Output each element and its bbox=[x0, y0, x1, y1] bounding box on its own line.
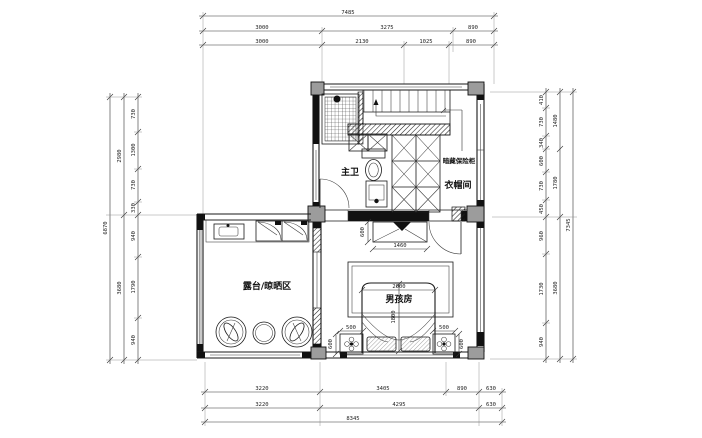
dim-top-r2-2: 890 bbox=[468, 25, 478, 31]
dim-bot-r1-1: 3405 bbox=[376, 386, 389, 392]
structural-column bbox=[467, 206, 484, 222]
structural-column bbox=[311, 82, 324, 95]
dim-bot-total: 8345 bbox=[346, 416, 359, 422]
dim-right-g2: 3680 bbox=[553, 281, 559, 294]
floor-drain bbox=[334, 96, 341, 103]
round-chair-left bbox=[216, 317, 246, 347]
dim-bed-length: 1800 bbox=[391, 310, 397, 323]
vanity-fixture bbox=[366, 181, 387, 207]
floor-plan-drawing: 7485 3000 3275 890 3000 2130 1025 890 32… bbox=[0, 0, 702, 438]
structural-column bbox=[468, 347, 484, 359]
label-hidden-safe: 暗藏保险柜 bbox=[443, 156, 476, 165]
dim-right-0: 410 bbox=[539, 95, 545, 105]
dim-bot-r2-0: 3220 bbox=[255, 402, 268, 408]
dim-right-2: 340 bbox=[539, 138, 545, 148]
interior-dimensions: 1460 600 2000 1800 500 500 600 600 bbox=[328, 219, 465, 357]
nightstand-left bbox=[340, 334, 363, 354]
upper-block: 暗藏保险柜 主卫 衣帽间 bbox=[308, 82, 484, 222]
round-table bbox=[253, 322, 275, 344]
dim-desk-width: 1460 bbox=[393, 243, 406, 249]
dim-left-2: 730 bbox=[131, 180, 137, 190]
dim-left-4: 940 bbox=[131, 231, 137, 241]
dimension-chain-right: 410 730 340 600 730 450 960 1730 940 148… bbox=[490, 88, 577, 363]
dim-left-total: 6870 bbox=[103, 221, 109, 234]
wall-hatch bbox=[452, 207, 465, 221]
dim-right-g1: 1780 bbox=[553, 176, 559, 189]
dim-left-g0: 2980 bbox=[117, 149, 123, 162]
dim-nightstand-left-depth: 600 bbox=[328, 339, 334, 349]
dim-desk-depth: 600 bbox=[360, 227, 366, 237]
dimension-chain-left: 730 1300 730 330 940 1790 940 2980 3680 … bbox=[103, 93, 197, 364]
pillow bbox=[401, 337, 430, 351]
lamp bbox=[350, 342, 353, 345]
shower-area bbox=[322, 92, 363, 144]
floor-plan-canvas: 7485 3000 3275 890 3000 2130 1025 890 32… bbox=[0, 0, 702, 438]
dim-right-7: 1730 bbox=[539, 282, 545, 295]
laundry-counter bbox=[206, 220, 309, 242]
dim-top-r2-0: 3000 bbox=[255, 25, 268, 31]
wardrobe-cabinet bbox=[392, 135, 440, 212]
dim-bot-r1-3: 630 bbox=[486, 386, 496, 392]
dim-left-6: 940 bbox=[131, 335, 137, 345]
label-terrace: 露台/晾晒区 bbox=[243, 280, 291, 292]
dim-left-0: 730 bbox=[131, 109, 137, 119]
dim-top-r3-1: 2130 bbox=[355, 39, 368, 45]
dimension-chain-bottom: 3220 3405 890 630 3220 4295 630 8345 bbox=[201, 362, 506, 426]
label-cloakroom: 衣帽间 bbox=[444, 179, 471, 191]
dim-right-4: 730 bbox=[539, 181, 545, 191]
dim-top-r3-0: 3000 bbox=[255, 39, 268, 45]
lamp bbox=[442, 342, 445, 345]
dim-right-total: 7345 bbox=[566, 218, 572, 231]
dim-top-r3-3: 890 bbox=[466, 39, 476, 45]
dim-top-total: 7485 bbox=[341, 10, 354, 16]
structural-column bbox=[468, 82, 484, 95]
toilet bbox=[362, 149, 385, 181]
dim-bot-r2-1: 4295 bbox=[392, 402, 405, 408]
round-chair-right bbox=[282, 317, 312, 347]
dim-nightstand-left: 500 bbox=[346, 325, 356, 331]
dim-right-g0: 1480 bbox=[553, 114, 559, 127]
dim-nightstand-right-depth: 600 bbox=[459, 339, 465, 349]
dim-right-3: 600 bbox=[539, 156, 545, 166]
boys-room: 1460 600 2000 1800 500 500 600 600 男孩房 bbox=[311, 219, 484, 359]
dim-top-r2-1: 3275 bbox=[380, 25, 393, 31]
stair-direction-arrow bbox=[374, 99, 379, 105]
dim-top-r3-2: 1025 bbox=[419, 39, 432, 45]
dim-bot-r1-0: 3220 bbox=[255, 386, 268, 392]
dim-left-5: 1790 bbox=[131, 280, 137, 293]
bed bbox=[362, 283, 435, 353]
dim-left-3: 330 bbox=[131, 203, 137, 213]
boys-room-door bbox=[429, 222, 461, 254]
dim-nightstand-right: 500 bbox=[439, 325, 449, 331]
dim-right-8: 940 bbox=[539, 337, 545, 347]
dim-right-1: 730 bbox=[539, 117, 545, 127]
dim-right-5: 450 bbox=[539, 204, 545, 214]
pillow bbox=[367, 337, 396, 351]
faucet bbox=[227, 224, 230, 227]
desk bbox=[373, 222, 427, 242]
terrace: 露台/晾晒区 bbox=[197, 214, 313, 358]
dim-right-6: 960 bbox=[539, 231, 545, 241]
desk-chair bbox=[393, 222, 411, 231]
bath-door bbox=[320, 179, 349, 208]
dim-left-g1: 3680 bbox=[117, 281, 123, 294]
structural-column bbox=[311, 347, 326, 359]
label-boys-room: 男孩房 bbox=[385, 293, 412, 305]
wall-segment bbox=[348, 211, 429, 221]
dim-bot-r2-2: 630 bbox=[486, 402, 496, 408]
nightstand-right bbox=[433, 334, 455, 354]
dim-bot-r1-2: 890 bbox=[457, 386, 467, 392]
dim-left-1: 1300 bbox=[131, 143, 137, 156]
label-master-bath: 主卫 bbox=[341, 166, 359, 178]
